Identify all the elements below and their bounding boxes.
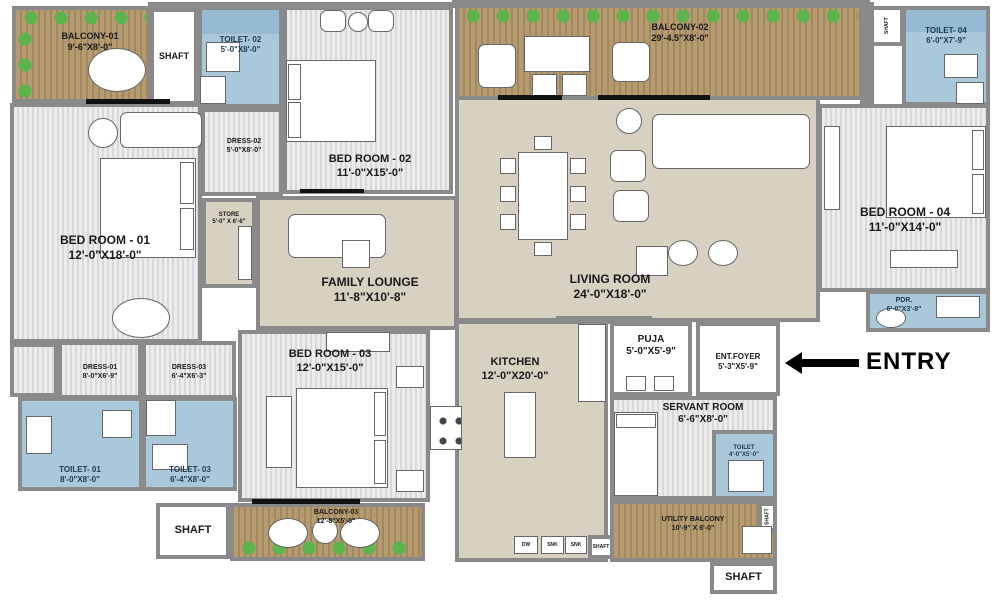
dining-chair: [570, 214, 586, 230]
sofa: [288, 214, 386, 258]
petal-chair: [340, 518, 380, 548]
coffee-table: [342, 240, 370, 268]
sink: [876, 308, 906, 328]
armchair: [112, 298, 170, 338]
floor-plan: BALCONY-019'-6"X8'-0" SHAFT TOILET- 025'…: [0, 0, 1000, 600]
door-sill: [86, 99, 170, 104]
ottoman: [708, 240, 738, 266]
kitchen-sink: [541, 536, 564, 554]
coffee-table: [636, 246, 668, 276]
shower-tiles: [202, 10, 279, 34]
kitchen-island: [504, 392, 536, 458]
dining-chair: [500, 158, 516, 174]
sink: [26, 416, 52, 454]
room-shaft-top-left: [150, 8, 198, 105]
plant-row: [458, 8, 858, 23]
toilet-fixture: [102, 410, 132, 438]
balcony-chair: [88, 48, 146, 92]
toilet-fixture: [936, 296, 980, 318]
entry-label: ENTRY: [866, 348, 951, 376]
balcony-table: [312, 518, 338, 544]
wall-segment: [860, 2, 874, 104]
pillow: [374, 440, 386, 484]
shower-tiles: [906, 10, 986, 32]
room-shaft-kitchen: [588, 535, 614, 559]
door-sill: [252, 499, 360, 504]
sink: [200, 76, 226, 104]
balcony-chair: [532, 74, 557, 96]
door-sill: [300, 189, 364, 193]
lounge-chair: [612, 42, 650, 82]
pillow: [972, 130, 984, 170]
toilet-fixture: [152, 444, 188, 470]
shower-tray: [956, 82, 984, 104]
dining-chair: [534, 242, 552, 256]
dining-chair: [534, 136, 552, 150]
entry-arrow-shaft: [801, 359, 859, 367]
wall-segment: [148, 2, 458, 8]
side-table: [396, 470, 424, 492]
plant-row: [16, 10, 148, 26]
room-dress-03: [142, 341, 236, 399]
room-shaft-bottom-left: [156, 503, 230, 559]
armchair: [613, 190, 649, 222]
balcony-chair: [562, 74, 587, 96]
toilet-fixture: [206, 42, 240, 72]
puja-stool: [626, 376, 646, 391]
petal-chair: [268, 518, 308, 548]
dining-chair: [500, 186, 516, 202]
entry-arrow-icon: [785, 352, 802, 374]
pillow: [180, 208, 194, 250]
dining-chair: [500, 214, 516, 230]
lounge-chair: [478, 44, 516, 88]
pillow: [288, 64, 301, 100]
washing-machine: [742, 526, 772, 554]
shelf: [238, 226, 252, 280]
stove: [430, 406, 462, 450]
dining-chair: [570, 158, 586, 174]
pillow: [374, 392, 386, 436]
side-table: [396, 366, 424, 388]
room-puja: [610, 322, 692, 396]
room-dress-01: [58, 341, 142, 399]
dishwasher: [514, 536, 538, 554]
room-ent-foyer: [696, 322, 780, 396]
room-shaft-bottom-right: [710, 562, 777, 594]
dining-chair: [570, 186, 586, 202]
tub-chair: [368, 10, 394, 32]
door-sill: [598, 95, 710, 100]
tub-chair: [320, 10, 346, 32]
ottoman: [668, 240, 698, 266]
pillow: [616, 414, 656, 428]
bench: [326, 332, 390, 352]
wall-segment: [556, 316, 652, 324]
dining-table: [518, 152, 568, 240]
puja-stool: [654, 376, 674, 391]
pillow: [180, 162, 194, 204]
side-table: [88, 118, 118, 148]
sofa: [652, 114, 810, 169]
wardrobe: [824, 126, 840, 210]
nightstand: [266, 396, 292, 468]
armchair: [610, 150, 646, 182]
side-table: [348, 12, 368, 32]
refrigerator: [578, 324, 606, 402]
balcony-table: [524, 36, 590, 72]
door-sill: [498, 95, 562, 100]
bed: [886, 126, 986, 218]
toilet-fixture: [728, 460, 764, 492]
pillow: [288, 102, 301, 138]
side-table: [616, 108, 642, 134]
wall-segment: [452, 0, 870, 6]
chaise: [120, 112, 202, 148]
plant-column: [16, 26, 34, 98]
toilet-fixture: [944, 54, 978, 78]
dresser: [890, 250, 958, 268]
room-shaft-top-right: [870, 6, 904, 46]
room-dress-02: [201, 108, 283, 196]
sink: [146, 400, 176, 436]
pillow: [972, 174, 984, 214]
room-passage: [10, 343, 58, 397]
kitchen-sink: [565, 536, 587, 554]
